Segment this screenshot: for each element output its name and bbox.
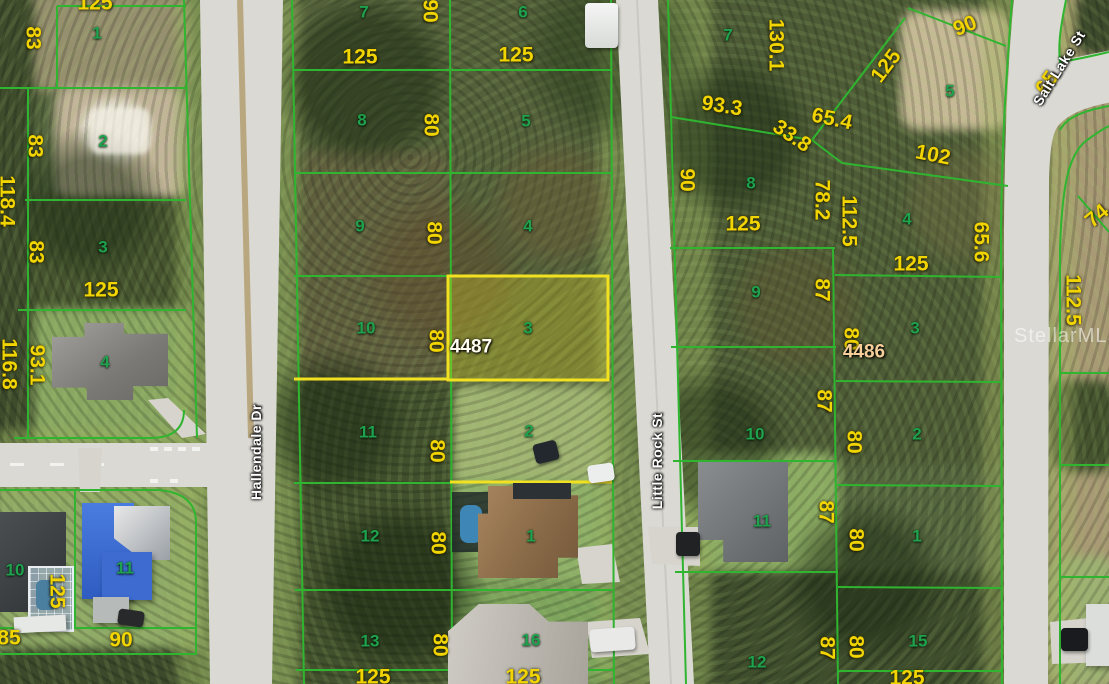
- lot-number-label: 16: [522, 632, 541, 649]
- lot-number-label: 10: [6, 562, 25, 579]
- lot-number-label: 12: [748, 654, 767, 671]
- lot-number-label: 4: [523, 218, 532, 235]
- lot-number-label: 6: [518, 4, 527, 21]
- street-name-label: Salt Lake St: [1030, 28, 1087, 108]
- aerial-parcel-map[interactable]: 1234101178910111213654321167891011125432…: [0, 0, 1109, 684]
- dimension-label: 80: [428, 531, 449, 554]
- lot-number-label: 3: [523, 320, 532, 337]
- dimension-label: 125: [725, 214, 760, 235]
- dimension-label: 130.1: [766, 19, 787, 72]
- subject-parcel-id: 4487: [450, 338, 492, 357]
- dimension-label: 80: [846, 635, 867, 658]
- lot-number-label: 5: [521, 113, 530, 130]
- dimension-label: 87: [816, 500, 837, 523]
- lot-number-label: 10: [357, 320, 376, 337]
- dimension-label: 90: [950, 12, 980, 40]
- dimension-label: 90: [677, 168, 698, 191]
- dimension-label: 112.5: [839, 195, 860, 246]
- dimension-label: 87: [817, 636, 838, 659]
- dimension-label: 125: [47, 573, 68, 608]
- dimension-label: 78.2: [812, 180, 833, 221]
- lot-number-label: 11: [116, 560, 134, 577]
- dimension-label: 125: [505, 667, 540, 684]
- lot-number-label: 1: [912, 528, 921, 545]
- subject-parcel-id: 4486: [843, 343, 885, 362]
- lot-number-label: 5: [945, 83, 954, 100]
- dimension-label: 80: [421, 113, 442, 136]
- street-name-label: Hallendale Dr: [249, 404, 263, 500]
- lot-number-label: 8: [357, 112, 366, 129]
- dimension-label: 85: [0, 628, 21, 649]
- dimension-label: 87: [814, 389, 835, 412]
- lot-number-label: 2: [912, 426, 921, 443]
- dimension-label: 125: [889, 668, 924, 684]
- lot-number-label: 3: [910, 320, 919, 337]
- dimension-label: 33.8: [769, 116, 815, 156]
- dimension-label: 80: [426, 329, 447, 352]
- dimension-label: 83: [23, 26, 44, 49]
- dimension-label: 80: [430, 633, 451, 656]
- dimension-label: 125: [355, 667, 390, 684]
- dimension-label: 90: [109, 630, 132, 651]
- street-name-label: Little Rock St: [650, 413, 664, 509]
- lot-number-label: 11: [359, 424, 377, 441]
- dimension-label: 125: [83, 280, 118, 301]
- dimension-label: 65.4: [810, 104, 854, 133]
- dimension-label: 102: [914, 141, 952, 168]
- dimension-label: 83: [25, 134, 46, 157]
- dimension-label: 125: [342, 47, 377, 68]
- dimension-label: 74: [1081, 200, 1109, 231]
- lot-number-label: 9: [751, 284, 760, 301]
- dimension-label: 112.5: [1063, 274, 1084, 325]
- lot-number-label: 2: [524, 423, 533, 440]
- dimension-label: 93.1: [27, 345, 48, 386]
- lot-number-label: 3: [98, 239, 107, 256]
- dimension-label: 125: [498, 45, 533, 66]
- lot-number-label: 8: [746, 175, 755, 192]
- lot-number-label: 12: [361, 528, 380, 545]
- lot-number-label: 15: [909, 633, 928, 650]
- lot-number-label: 13: [361, 633, 380, 650]
- dimension-label: 80: [427, 439, 448, 462]
- dimension-label: 80: [846, 528, 867, 551]
- lot-number-label: 11: [753, 513, 771, 530]
- lot-number-label: 9: [355, 218, 364, 235]
- dimension-label: 116.8: [0, 338, 20, 389]
- map-labels: 1234101178910111213654321167891011125432…: [0, 0, 1109, 684]
- dimension-label: 80: [844, 430, 865, 453]
- dimension-label: 90: [420, 0, 441, 23]
- dimension-label: 87: [812, 278, 833, 301]
- dimension-label: 125: [867, 46, 905, 87]
- lot-number-label: 10: [746, 426, 765, 443]
- dimension-label: 93.3: [700, 92, 744, 119]
- lot-number-label: 7: [723, 27, 732, 44]
- lot-number-label: 7: [359, 4, 368, 21]
- stellar-mls-watermark: StellarMLS: [1014, 326, 1109, 346]
- dimension-label: 65.6: [971, 222, 992, 263]
- dimension-label: 125: [77, 0, 112, 14]
- dimension-label: 125: [893, 254, 928, 275]
- lot-number-label: 1: [526, 528, 535, 545]
- lot-number-label: 2: [98, 133, 107, 150]
- dimension-label: 83: [26, 240, 47, 263]
- lot-number-label: 1: [92, 25, 101, 42]
- dimension-label: 118.4: [0, 175, 18, 226]
- dimension-label: 80: [424, 221, 445, 244]
- lot-number-label: 4: [902, 211, 911, 228]
- lot-number-label: 4: [100, 354, 109, 371]
